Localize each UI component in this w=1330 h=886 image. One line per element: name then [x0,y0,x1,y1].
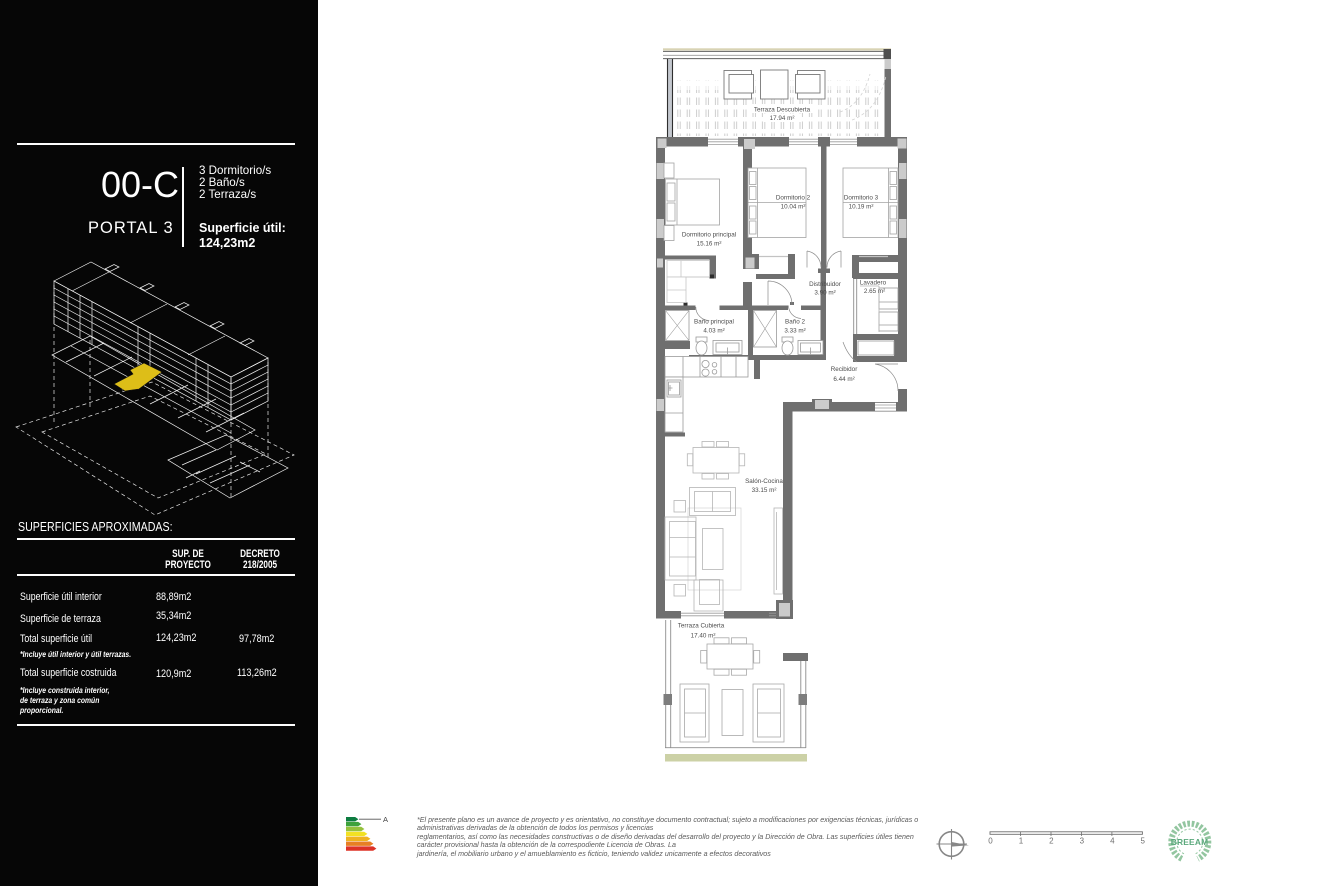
svg-text:BREEAM: BREEAM [1171,837,1209,847]
svg-text:2: 2 [1049,837,1054,846]
svg-text:1: 1 [1019,837,1024,846]
svg-text:3: 3 [1080,837,1085,846]
svg-text:A: A [383,815,388,824]
svg-text:4: 4 [1110,837,1115,846]
svg-text:0: 0 [988,837,993,846]
svg-text:5: 5 [1140,837,1145,846]
